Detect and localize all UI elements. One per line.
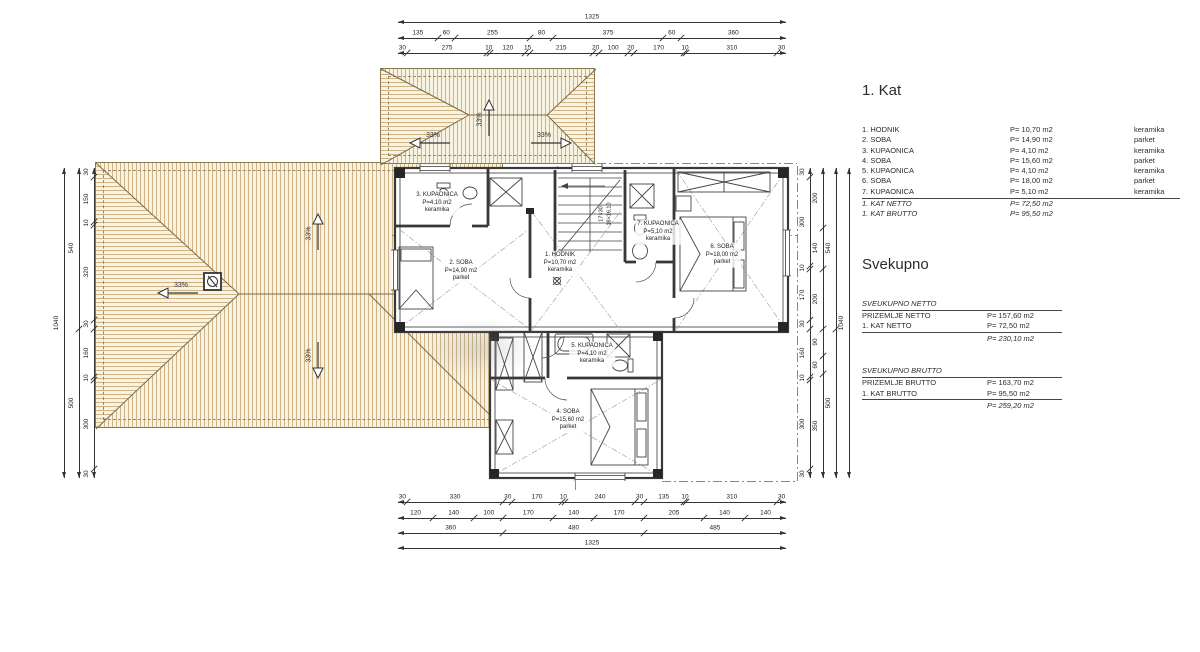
- stair-dimensions-label: 17×30 18×16,10: [598, 202, 613, 225]
- roof-slope-arrow: 33%: [156, 271, 200, 315]
- floor-title: 1. Kat: [862, 82, 1180, 99]
- dim-label: 1325: [585, 15, 599, 22]
- dim-label: 10: [84, 375, 91, 382]
- legend-row: 2. SOBAP= 14,90 m2parket: [862, 135, 1180, 145]
- dim-arrow: [780, 546, 786, 550]
- dim-label: 540: [826, 243, 833, 254]
- dim-arrow: [821, 472, 825, 478]
- roof-slope-arrow: 33%: [529, 121, 573, 165]
- room-floor: parket: [552, 424, 585, 432]
- dim-arrow: [398, 36, 404, 40]
- legend-total-name: 1. KAT BRUTTO: [862, 209, 1010, 219]
- legend-room-material: keramika: [1134, 187, 1180, 196]
- room-name: 6. SOBA: [706, 244, 739, 252]
- watermark: [425, 318, 535, 380]
- room-label: 5. KUPAONICAP=4,10 m2keramika: [569, 342, 615, 367]
- dim-label: 500: [69, 398, 76, 409]
- slope-percent-label: 33%: [306, 348, 313, 362]
- legend-row: 6. SOBAP= 18,00 m2parket: [862, 176, 1180, 186]
- dim-arrow: [398, 546, 404, 550]
- summary-total-row: P= 230,10 m2: [862, 334, 1062, 345]
- dim-arrow: [780, 20, 786, 24]
- room-area: P=4,10 m2: [416, 199, 458, 207]
- roof-slope-arrow: 33%: [296, 338, 340, 382]
- legend-room-name: 5. KUPAONICA: [862, 166, 1010, 175]
- dim-label: 60: [668, 31, 675, 38]
- dimension-line: [398, 22, 786, 23]
- summary-row: 1. KAT NETTOP= 72,50 m2: [862, 321, 1062, 333]
- slope-percent-label: 33%: [537, 132, 551, 139]
- roof-slope-arrow: 33%: [467, 96, 511, 140]
- summary-heading: SVEUKUPNO NETTO: [862, 299, 1062, 311]
- dim-label: 30: [504, 495, 511, 502]
- dim-label: 215: [556, 46, 567, 53]
- room-floor: keramika: [571, 358, 613, 366]
- dim-arrow: [92, 168, 96, 174]
- dim-label: 170: [532, 495, 543, 502]
- summary-brutto-table: SVEUKUPNO BRUTTOPRIZEMLJE BRUTTOP= 163,7…: [862, 366, 1062, 412]
- legend-room-material: keramika: [1134, 146, 1180, 155]
- summary-row: PRIZEMLJE NETTOP= 157,60 m2: [862, 311, 1062, 322]
- stair-riser-label: 18×16,10: [606, 202, 614, 225]
- dim-arrow: [62, 168, 66, 174]
- dim-arrow: [847, 168, 851, 174]
- dim-arrow: [821, 168, 825, 174]
- summary-row-name: PRIZEMLJE BRUTTO: [862, 378, 987, 389]
- dim-label: 10: [84, 220, 91, 227]
- dim-arrow: [780, 36, 786, 40]
- legend-row: 4. SOBAP= 15,60 m2parket: [862, 156, 1180, 166]
- stair-tread-label: 17×30: [598, 202, 606, 225]
- legend-row: 7. KUPAONICAP= 5,10 m2keramika: [862, 187, 1180, 197]
- floorplan-canvas: 17×30 18×16,10 3. KUPAONICAP=4,10 m2kera…: [0, 0, 1200, 652]
- dim-label: 30: [800, 321, 807, 328]
- dim-arrow: [398, 20, 404, 24]
- dimension-line: [64, 168, 65, 478]
- room-floor: parket: [445, 275, 478, 283]
- room-label: 4. SOBAP=15,60 m2parket: [550, 408, 587, 433]
- room-floor: keramika: [416, 207, 458, 215]
- legend-row: 3. KUPAONICAP= 4,10 m2keramika: [862, 146, 1180, 156]
- room-name: 5. KUPAONICA: [571, 343, 613, 351]
- dim-label: 140: [719, 511, 730, 518]
- dim-label: 310: [726, 46, 737, 53]
- dim-label: 30: [800, 169, 807, 176]
- dim-label: 140: [813, 243, 820, 254]
- room-floor: parket: [706, 259, 739, 267]
- dim-label: 160: [84, 347, 91, 358]
- room-label: 7. KUPAONICAP=5,10 m2keramika: [635, 220, 681, 245]
- dim-arrow: [780, 531, 786, 535]
- dim-arrow: [77, 168, 81, 174]
- dim-label: 205: [669, 511, 680, 518]
- summary-row: PRIZEMLJE BRUTTOP= 163,70 m2: [862, 378, 1062, 389]
- room-area: P=14,90 m2: [445, 267, 478, 275]
- slope-arrow-icon: [296, 210, 340, 254]
- slope-arrow-icon: [156, 271, 200, 315]
- room-floor: keramika: [544, 267, 577, 275]
- dim-arrow: [77, 472, 81, 478]
- legend-room-material: parket: [1134, 176, 1180, 185]
- room-name: 7. KUPAONICA: [637, 221, 679, 229]
- slope-percent-label: 33%: [306, 226, 313, 240]
- dim-label: 200: [813, 294, 820, 305]
- room-floor: keramika: [637, 236, 679, 244]
- dim-label: 135: [412, 31, 423, 38]
- legend-room-name: 6. SOBA: [862, 176, 1010, 185]
- dim-label: 140: [448, 511, 459, 518]
- dim-label: 170: [614, 511, 625, 518]
- dim-label: 200: [813, 192, 820, 203]
- room-area: P=5,10 m2: [637, 228, 679, 236]
- summary-heading: SVEUKUPNO BRUTTO: [862, 366, 1062, 378]
- summary-row-name: PRIZEMLJE NETTO: [862, 311, 987, 322]
- legend-room-name: 2. SOBA: [862, 135, 1010, 144]
- dim-label: 100: [483, 511, 494, 518]
- dimension-line: [398, 38, 786, 39]
- dim-label: 30: [778, 495, 785, 502]
- dim-label: 300: [800, 419, 807, 430]
- dim-label: 1040: [839, 316, 846, 330]
- dim-arrow: [780, 516, 786, 520]
- dim-label: 100: [608, 46, 619, 53]
- summary-total-area: P= 230,10 m2: [987, 334, 1062, 345]
- legend-room-area: P= 10,70 m2: [1010, 125, 1134, 134]
- dim-label: 140: [568, 511, 579, 518]
- slope-arrow-icon: [296, 338, 340, 382]
- legend-total-row: 1. KAT BRUTTOP= 95,50 m2: [862, 209, 1180, 219]
- legend-room-name: 7. KUPAONICA: [862, 187, 1010, 196]
- legend-room-material: parket: [1134, 135, 1180, 144]
- dim-label: 480: [568, 526, 579, 533]
- room-area: P=4,10 m2: [571, 350, 613, 358]
- legend-room-material: parket: [1134, 156, 1180, 165]
- legend-room-table: 1. HODNIKP= 10,70 m2keramika2. SOBAP= 14…: [862, 125, 1180, 199]
- legend-totals: 1. KAT NETTOP= 72,50 m21. KAT BRUTTOP= 9…: [862, 199, 1180, 220]
- summary-total-spacer: [862, 334, 987, 345]
- dim-label: 30: [800, 470, 807, 477]
- dim-label: 60: [443, 31, 450, 38]
- dim-label: 240: [595, 495, 606, 502]
- dim-label: 135: [658, 495, 669, 502]
- dimension-line: [398, 502, 786, 503]
- dim-label: 275: [442, 46, 453, 53]
- dim-arrow: [834, 472, 838, 478]
- legend-total-row: 1. KAT NETTOP= 72,50 m2: [862, 199, 1180, 209]
- room-name: 1. HODNIK: [544, 252, 577, 260]
- dimension-line: [849, 168, 850, 478]
- dim-label: 1040: [54, 316, 61, 330]
- legend-room-area: P= 4,10 m2: [1010, 166, 1134, 175]
- dim-label: 20: [592, 46, 599, 53]
- legend-room-material: keramika: [1134, 166, 1180, 175]
- summary-total-row: P= 259,20 m2: [862, 401, 1062, 412]
- room-label: 2. SOBAP=14,90 m2parket: [443, 259, 480, 284]
- roof-slope-arrow: 33%: [408, 121, 452, 165]
- dimension-line: [823, 168, 824, 478]
- room-label: 6. SOBAP=18,00 m2parket: [704, 243, 741, 268]
- dim-label: 30: [399, 495, 406, 502]
- legend-room-area: P= 5,10 m2: [1010, 187, 1134, 196]
- room-area: P=18,00 m2: [706, 251, 739, 259]
- room-name: 2. SOBA: [445, 260, 478, 268]
- dim-label: 375: [603, 31, 614, 38]
- dim-arrow: [808, 168, 812, 174]
- room-label: 3. KUPAONICAP=4,10 m2keramika: [414, 191, 460, 216]
- summary-row: 1. KAT BRUTTOP= 95,50 m2: [862, 389, 1062, 401]
- dim-label: 485: [710, 526, 721, 533]
- dim-label: 120: [410, 511, 421, 518]
- slope-arrow-icon: [529, 121, 573, 165]
- dim-label: 30: [84, 321, 91, 328]
- legend-total-area: P= 72,50 m2: [1010, 199, 1180, 209]
- summary-row-name: 1. KAT BRUTTO: [862, 389, 987, 400]
- dim-label: 255: [487, 31, 498, 38]
- dim-label: 30: [84, 169, 91, 176]
- dim-arrow: [398, 531, 404, 535]
- dimension-line: [398, 533, 786, 534]
- summary-row-name: 1. KAT NETTO: [862, 321, 987, 332]
- roof-slope-arrow: 33%: [296, 210, 340, 254]
- dim-label: 350: [813, 420, 820, 431]
- dimension-line: [398, 548, 786, 549]
- dim-label: 1325: [585, 541, 599, 548]
- dim-label: 170: [523, 511, 534, 518]
- summary-row-area: P= 72,50 m2: [987, 321, 1062, 332]
- dim-arrow: [808, 472, 812, 478]
- dim-label: 30: [778, 46, 785, 53]
- legend-room-material: keramika: [1134, 125, 1180, 134]
- dim-label: 300: [800, 216, 807, 227]
- dim-label: 330: [450, 495, 461, 502]
- legend-room-name: 3. KUPAONICA: [862, 146, 1010, 155]
- dim-label: 500: [826, 398, 833, 409]
- summary-netto-table: SVEUKUPNO NETTOPRIZEMLJE NETTOP= 157,60 …: [862, 299, 1062, 345]
- dim-label: 360: [445, 526, 456, 533]
- legend-room-area: P= 4,10 m2: [1010, 146, 1134, 155]
- dim-label: 320: [84, 267, 91, 278]
- room-label: 1. HODNIKP=10,70 m2keramika: [542, 251, 579, 276]
- summary-total-spacer: [862, 401, 987, 412]
- summary-row-area: P= 95,50 m2: [987, 389, 1062, 400]
- dim-arrow: [62, 472, 66, 478]
- dim-label: 300: [84, 419, 91, 430]
- dim-label: 120: [502, 46, 513, 53]
- dim-label: 140: [760, 511, 771, 518]
- dim-label: 10: [800, 264, 807, 271]
- legend-row: 5. KUPAONICAP= 4,10 m2keramika: [862, 166, 1180, 176]
- dimension-line: [810, 168, 811, 478]
- dim-label: 150: [84, 194, 91, 205]
- legend-room-area: P= 18,00 m2: [1010, 176, 1134, 185]
- dim-label: 160: [800, 347, 807, 358]
- legend-panel: 1. Kat 1. HODNIKP= 10,70 m2keramika2. SO…: [862, 82, 1180, 434]
- legend-total-name: 1. KAT NETTO: [862, 199, 1010, 209]
- room-area: P=10,70 m2: [544, 259, 577, 267]
- dim-arrow: [834, 168, 838, 174]
- dim-label: 30: [399, 46, 406, 53]
- legend-row: 1. HODNIKP= 10,70 m2keramika: [862, 125, 1180, 135]
- room-name: 3. KUPAONICA: [416, 192, 458, 200]
- slope-arrow-icon: [408, 121, 452, 165]
- dim-label: 170: [800, 289, 807, 300]
- dim-label: 10: [800, 375, 807, 382]
- room-area: P=15,60 m2: [552, 416, 585, 424]
- dim-label: 310: [726, 495, 737, 502]
- dim-label: 360: [728, 31, 739, 38]
- slope-percent-label: 33%: [477, 112, 484, 126]
- legend-total-area: P= 95,50 m2: [1010, 209, 1180, 219]
- summary-row-area: P= 157,60 m2: [987, 311, 1062, 322]
- summary-total-area: P= 259,20 m2: [987, 401, 1062, 412]
- dimension-line: [79, 168, 80, 478]
- dim-label: 60: [813, 361, 820, 368]
- dim-label: 540: [69, 243, 76, 254]
- dim-label: 30: [84, 470, 91, 477]
- dim-label: 90: [813, 339, 820, 346]
- slope-percent-label: 33%: [426, 132, 440, 139]
- room-name: 4. SOBA: [552, 409, 585, 417]
- slope-arrow-icon: [467, 96, 511, 140]
- slope-percent-label: 33%: [174, 282, 188, 289]
- dim-label: 80: [538, 31, 545, 38]
- dim-label: 30: [636, 495, 643, 502]
- legend-room-name: 1. HODNIK: [862, 125, 1010, 134]
- summary-title: Svekupno: [862, 256, 1180, 273]
- dim-arrow: [847, 472, 851, 478]
- summary-row-area: P= 163,70 m2: [987, 378, 1062, 389]
- legend-room-name: 4. SOBA: [862, 156, 1010, 165]
- legend-room-area: P= 15,60 m2: [1010, 156, 1134, 165]
- dim-label: 170: [653, 46, 664, 53]
- dim-arrow: [92, 472, 96, 478]
- dimension-line: [94, 168, 95, 478]
- dim-arrow: [398, 516, 404, 520]
- legend-room-area: P= 14,90 m2: [1010, 135, 1134, 144]
